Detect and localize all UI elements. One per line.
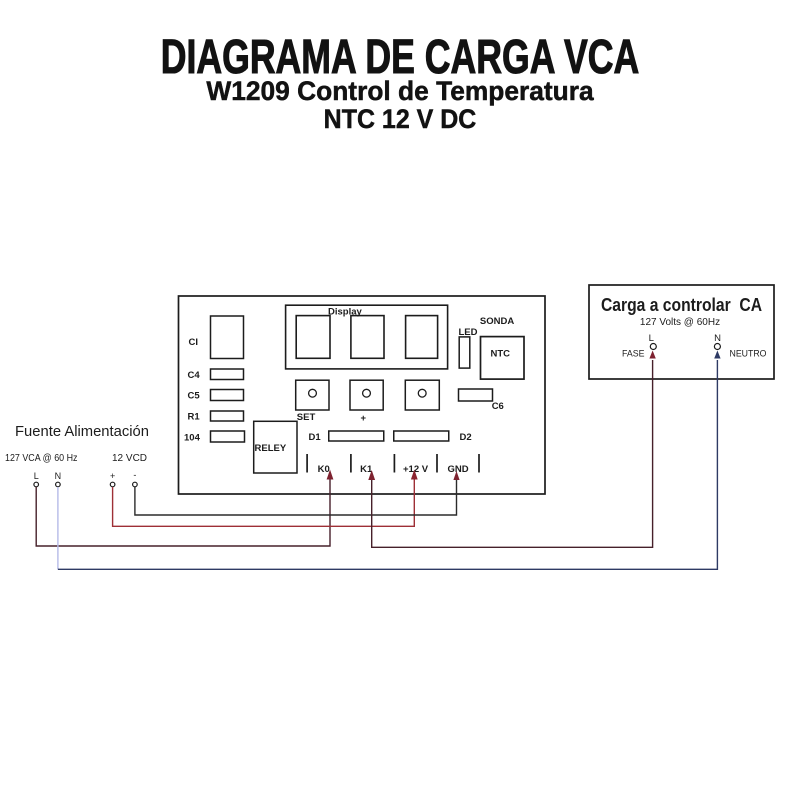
svg-text:K0: K0 bbox=[318, 464, 330, 475]
svg-text:104: 104 bbox=[184, 433, 201, 444]
svg-text:127 Volts @ 60Hz: 127 Volts @ 60Hz bbox=[640, 317, 720, 328]
svg-text:12 VCD: 12 VCD bbox=[112, 453, 147, 464]
svg-text:+12 V: +12 V bbox=[403, 464, 429, 475]
svg-text:SET: SET bbox=[297, 412, 316, 423]
svg-text:C4: C4 bbox=[188, 370, 201, 381]
svg-text:CI: CI bbox=[189, 337, 199, 348]
svg-text:127 VCA @ 60 Hz: 127 VCA @ 60 Hz bbox=[5, 453, 78, 464]
svg-text:SONDA: SONDA bbox=[480, 316, 514, 327]
svg-text:C5: C5 bbox=[188, 391, 201, 402]
svg-text:Carga a controlar CA: Carga a controlar CA bbox=[601, 295, 762, 315]
svg-text:Fuente Alimentación: Fuente Alimentación bbox=[15, 423, 149, 440]
svg-text:N: N bbox=[55, 471, 62, 481]
svg-text:L: L bbox=[34, 471, 39, 481]
svg-text:+: + bbox=[110, 471, 115, 481]
svg-text:C6: C6 bbox=[492, 401, 504, 412]
svg-text:N: N bbox=[714, 333, 721, 344]
svg-text:D1: D1 bbox=[309, 432, 322, 443]
svg-text:FASE: FASE bbox=[622, 349, 645, 360]
svg-text:R1: R1 bbox=[188, 412, 201, 423]
svg-text:NTC: NTC bbox=[491, 349, 511, 360]
svg-text:L: L bbox=[649, 333, 654, 344]
svg-text:-: - bbox=[133, 470, 136, 480]
svg-text:NEUTRO: NEUTRO bbox=[730, 349, 767, 360]
svg-text:D2: D2 bbox=[460, 432, 472, 443]
svg-text:GND: GND bbox=[448, 464, 469, 475]
svg-text:RELEY: RELEY bbox=[255, 443, 287, 454]
svg-text:+: + bbox=[361, 413, 367, 424]
